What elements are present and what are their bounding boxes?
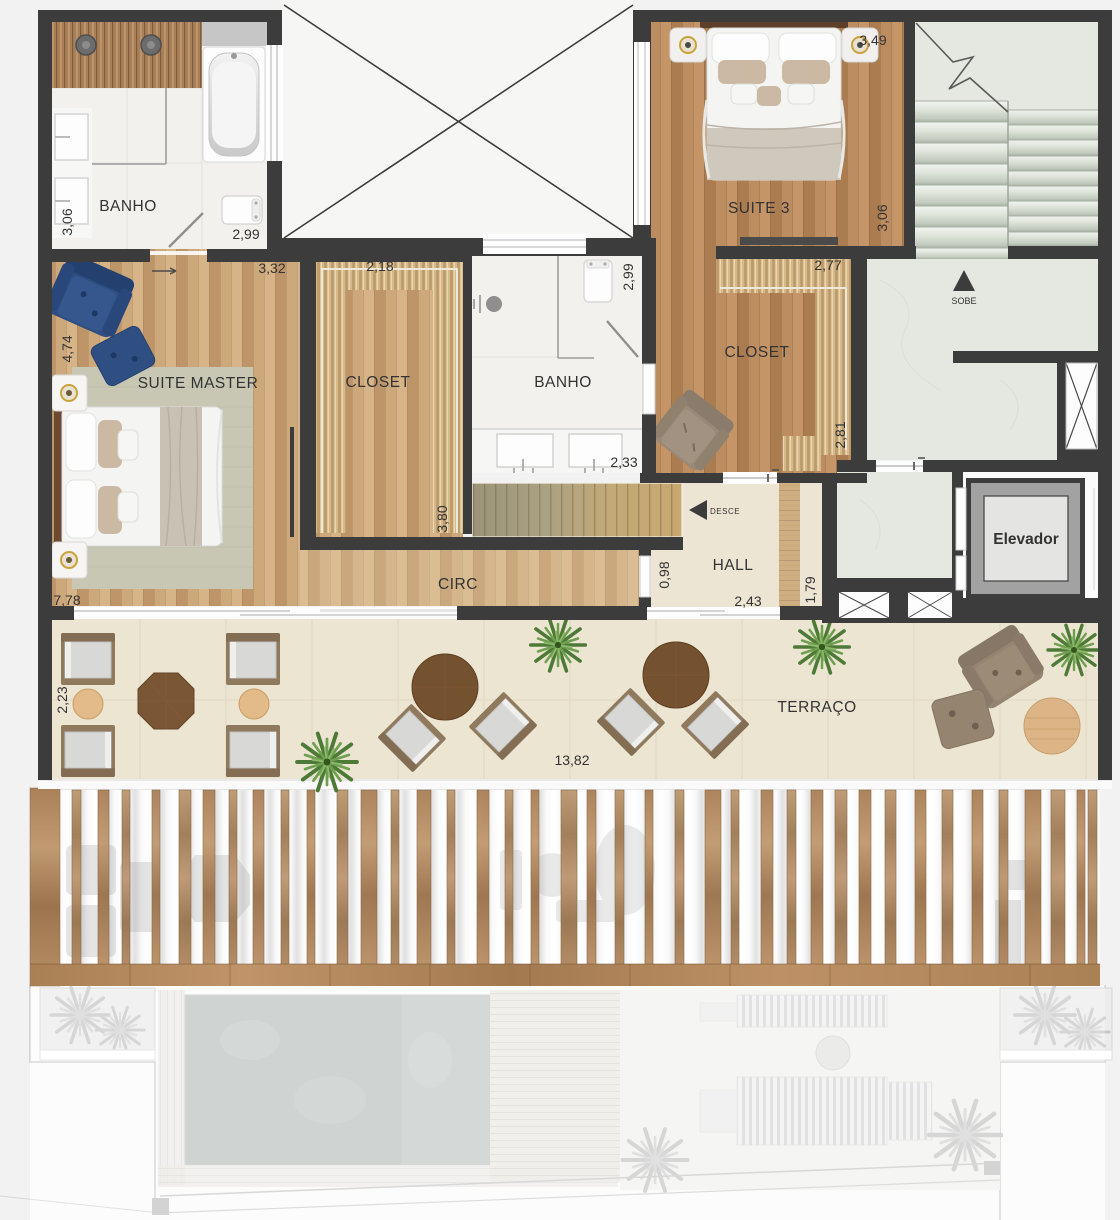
svg-text:CLOSET: CLOSET [724,344,789,361]
svg-text:2,33: 2,33 [610,454,637,470]
svg-text:HALL: HALL [713,557,754,574]
svg-text:CLOSET: CLOSET [345,374,410,391]
svg-text:2,81: 2,81 [832,421,848,448]
svg-text:3,06: 3,06 [874,204,890,231]
svg-text:2,43: 2,43 [734,593,761,609]
svg-text:2,23: 2,23 [54,686,70,713]
svg-text:2,77: 2,77 [814,257,841,273]
svg-text:1,79: 1,79 [802,576,818,603]
svg-text:CIRC: CIRC [438,576,478,593]
svg-text:0,98: 0,98 [656,561,672,588]
svg-text:SUITE 3: SUITE 3 [728,200,790,217]
svg-text:BANHO: BANHO [534,374,592,391]
svg-text:3,49: 3,49 [859,32,886,48]
svg-text:SOBE: SOBE [951,296,976,306]
svg-text:2,99: 2,99 [232,226,259,242]
svg-text:Elevador: Elevador [993,531,1058,548]
svg-text:3,32: 3,32 [258,260,285,276]
svg-text:3,80: 3,80 [434,505,450,532]
svg-text:TERRAÇO: TERRAÇO [777,699,856,716]
svg-text:SUITE MASTER: SUITE MASTER [138,375,259,392]
svg-text:DESCE: DESCE [710,507,740,516]
svg-text:3,06: 3,06 [59,208,75,235]
svg-text:2,99: 2,99 [620,263,636,290]
svg-text:7,78: 7,78 [53,592,80,608]
svg-text:4,74: 4,74 [59,335,75,362]
svg-text:2,18: 2,18 [366,258,393,274]
svg-text:13,82: 13,82 [554,752,589,768]
svg-text:BANHO: BANHO [99,198,157,215]
